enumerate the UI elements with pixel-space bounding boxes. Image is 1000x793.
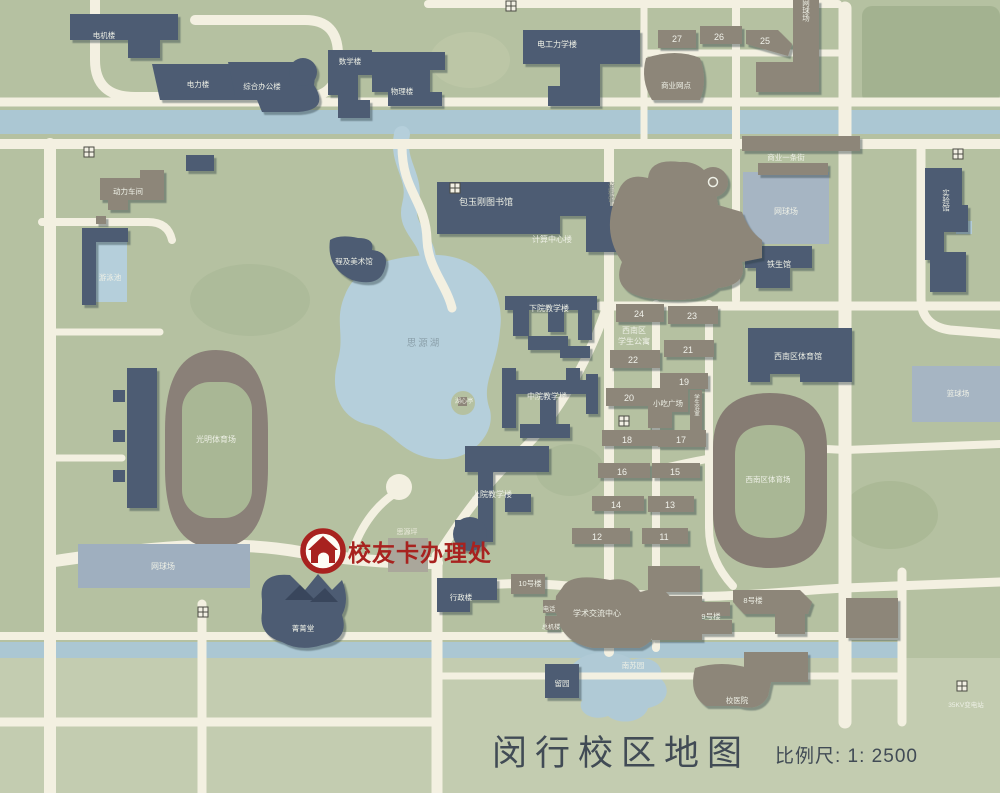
bldg-ne-gym-wing	[756, 62, 796, 92]
label-jingjingtang: 菁菁堂	[292, 623, 315, 633]
label-siyuanhu: 思源湖	[407, 338, 442, 349]
label-zhongyuan: 中院教学楼	[527, 391, 567, 401]
label-n15: 15	[670, 467, 680, 477]
map-canvas: 电机楼 电力楼 综合办公楼 数学楼 物理楼 电工力学楼 商业网点 27 26 2…	[0, 0, 1000, 793]
label-xinanqu-2: 学生公寓	[618, 336, 650, 346]
map-title: 闵行校区地图	[492, 734, 750, 773]
label-ziliaoguan: 资料馆	[608, 181, 616, 204]
bldg-shangyejie-1	[742, 136, 860, 151]
marker-label: 校友卡办理处	[348, 540, 492, 566]
label-n23: 23	[687, 311, 697, 321]
label-xinan-chang: 西南区体育场	[746, 474, 791, 484]
label-diangonglixue: 电工力学楼	[537, 39, 577, 49]
label-xueshu: 学术交流中心	[573, 608, 621, 618]
label-wuli: 物理楼	[391, 86, 414, 96]
label-wangqiu-w: 网球场	[151, 561, 175, 571]
bldg-shiyanguan	[925, 168, 968, 292]
bldg-shangyejie-2	[758, 163, 828, 175]
label-siyuanping: 思源坪	[397, 527, 418, 536]
label-wangqiu-e: 网球场	[774, 206, 798, 216]
label-shangyejie: 商业一条街	[767, 152, 805, 162]
campus-map: 电机楼 电力楼 综合办公楼 数学楼 物理楼 电工力学楼 商业网点 27 26 2…	[0, 0, 1000, 793]
bldg-dongli-3	[96, 216, 106, 224]
label-chengji: 程及美术馆	[335, 256, 373, 266]
label-yushi: 学生浴室	[693, 393, 700, 417]
bldg-dorm9-2	[694, 620, 732, 634]
gate-icon	[450, 183, 460, 193]
bldg-hospital-east	[744, 652, 808, 682]
bldg-dorm8-south	[775, 612, 805, 634]
label-xinan-guan: 西南区体育馆	[774, 351, 822, 361]
bldg-xueshu-north	[648, 566, 700, 592]
label-n10: 10号楼	[518, 578, 542, 588]
label-dianji: 电机楼	[93, 30, 116, 40]
label-xiaochi: 小吃广场	[653, 398, 683, 408]
label-xinanqu-1: 西南区	[622, 325, 646, 335]
label-n9: 9号楼	[701, 611, 721, 621]
label-dianli: 电力楼	[187, 79, 210, 89]
label-n26: 26	[714, 32, 724, 42]
label-n22: 22	[628, 355, 638, 365]
bldg-dongli-4	[140, 170, 164, 182]
label-library: 包玉刚图书馆	[459, 196, 513, 207]
label-xingzheng: 行政楼	[450, 592, 473, 602]
label-n12: 12	[592, 532, 602, 542]
gate-icon	[198, 607, 208, 617]
label-shuxue: 数学楼	[339, 56, 362, 66]
dorm-18	[602, 430, 666, 446]
label-n17: 17	[676, 435, 686, 445]
label-huxinting: 湖心亭	[455, 397, 474, 405]
label-n13: 13	[665, 500, 675, 510]
bldg-shangye-wangdian	[644, 53, 704, 100]
label-liuyuan: 留园	[555, 678, 570, 688]
label-dianhua-1: 电话	[543, 605, 555, 613]
gate-icon	[957, 681, 967, 691]
label-shangyewangdian: 商业网点	[661, 80, 691, 90]
label-nansuyuan: 南苏园	[622, 660, 645, 670]
gate-icon	[84, 147, 94, 157]
label-lanqiu: 篮球场	[947, 388, 970, 398]
label-n18: 18	[622, 435, 632, 445]
label-tiesheng: 铁生馆	[767, 259, 791, 269]
label-dianhua-2: 总机楼	[542, 623, 561, 631]
label-wangqiu-ne: 网球场	[801, 0, 810, 22]
label-xiaoyiyuan: 校医院	[726, 695, 749, 705]
label-dongli: 动力车间	[113, 186, 143, 196]
gate-icon	[506, 1, 516, 11]
label-n21: 21	[683, 345, 693, 355]
label-guangming: 光明体育场	[196, 434, 236, 444]
label-youyongchi: 游泳池	[99, 272, 122, 282]
label-shangyuan: 上院教学楼	[472, 489, 512, 499]
bldg-small-navy	[186, 155, 214, 171]
label-n19: 19	[679, 377, 689, 387]
label-bianzhan: 35KV变电站	[948, 700, 984, 709]
label-n20: 20	[624, 393, 634, 403]
label-shiyanguan: 实验馆	[941, 187, 950, 212]
label-n27: 27	[672, 34, 682, 44]
label-n8: 8号楼	[743, 595, 763, 605]
label-n24: 24	[634, 309, 644, 319]
bldg-round	[698, 167, 728, 197]
label-xiayuan: 下院教学楼	[529, 303, 569, 313]
label-n16: 16	[617, 467, 627, 477]
label-n11: 11	[659, 532, 668, 542]
label-n25: 25	[760, 36, 770, 46]
label-zongheban: 综合办公楼	[243, 81, 281, 91]
label-jisuan: 计算中心楼	[532, 234, 572, 244]
map-scale: 比例尺: 1: 2500	[775, 745, 918, 767]
gate-icon	[619, 416, 629, 426]
gate-icon	[953, 149, 963, 159]
label-n14: 14	[611, 500, 621, 510]
bldg-east-gray	[846, 598, 898, 638]
bldg-dongli-2	[108, 200, 128, 210]
swimming-pool-water	[93, 238, 127, 302]
